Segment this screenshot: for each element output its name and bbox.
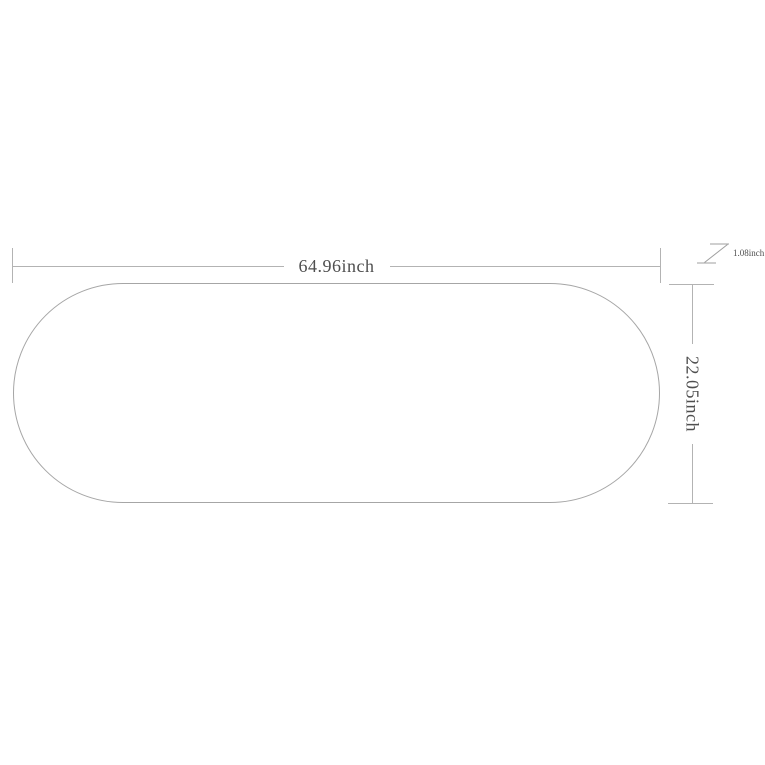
thickness-label: 1.08inch	[733, 248, 764, 258]
thickness-symbol-icon	[696, 240, 730, 266]
height-dimension-line-top	[692, 284, 693, 344]
width-dimension-line-left	[12, 266, 284, 267]
thickness-annotation: 1.08inch	[696, 240, 764, 266]
tabletop-outline	[13, 283, 660, 503]
height-dimension-label: 22.05inch	[682, 344, 703, 444]
width-dimension: 64.96inch	[12, 250, 661, 283]
width-dimension-label: 64.96inch	[284, 256, 390, 277]
width-dimension-line-right	[390, 266, 662, 267]
height-dimension-line-bottom	[692, 444, 693, 504]
dimension-diagram: 64.96inch 22.05inch 1.08inch	[0, 0, 765, 765]
height-dimension: 22.05inch	[676, 284, 708, 503]
height-dimension-bottom-tick	[668, 503, 713, 504]
